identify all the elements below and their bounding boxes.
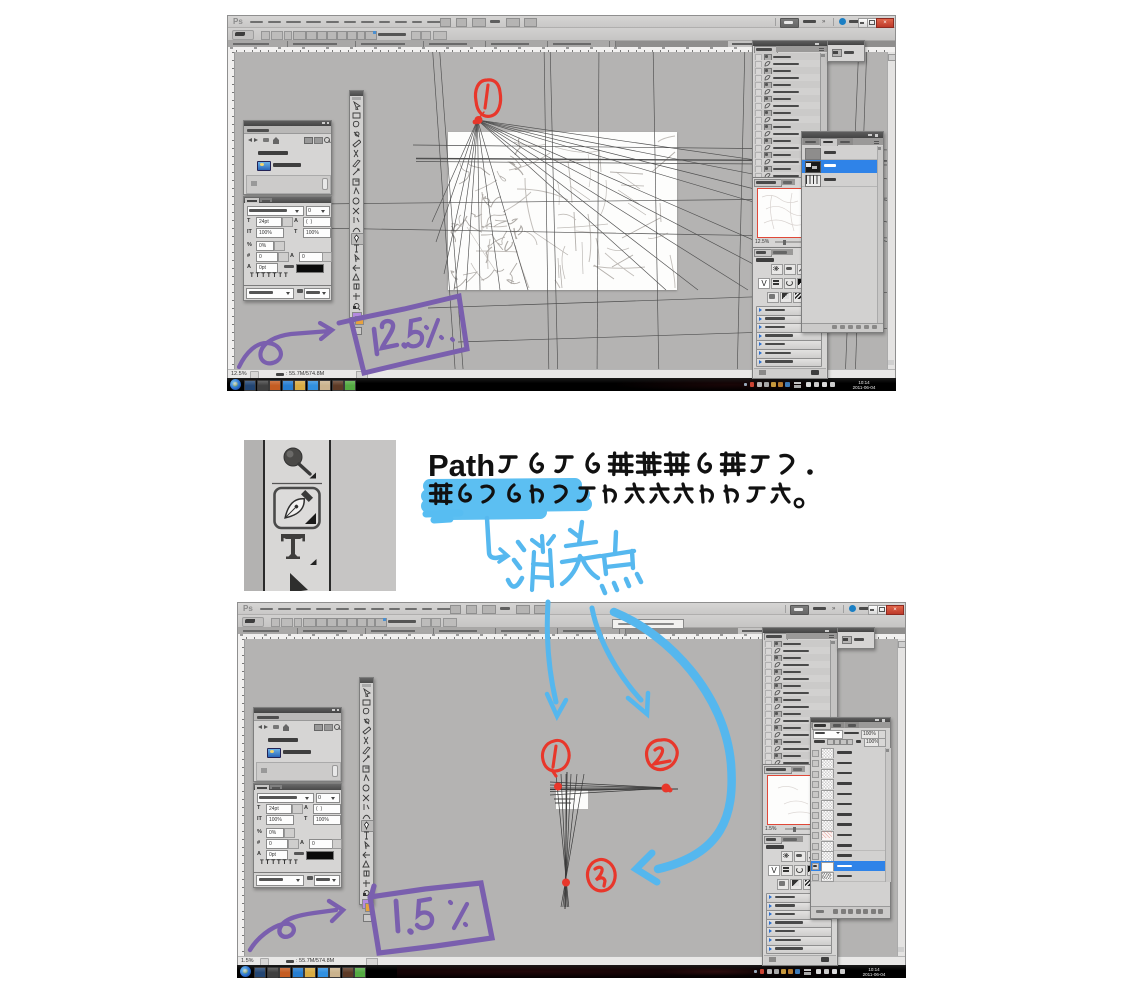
svg-text:Path: Path — [428, 448, 495, 483]
